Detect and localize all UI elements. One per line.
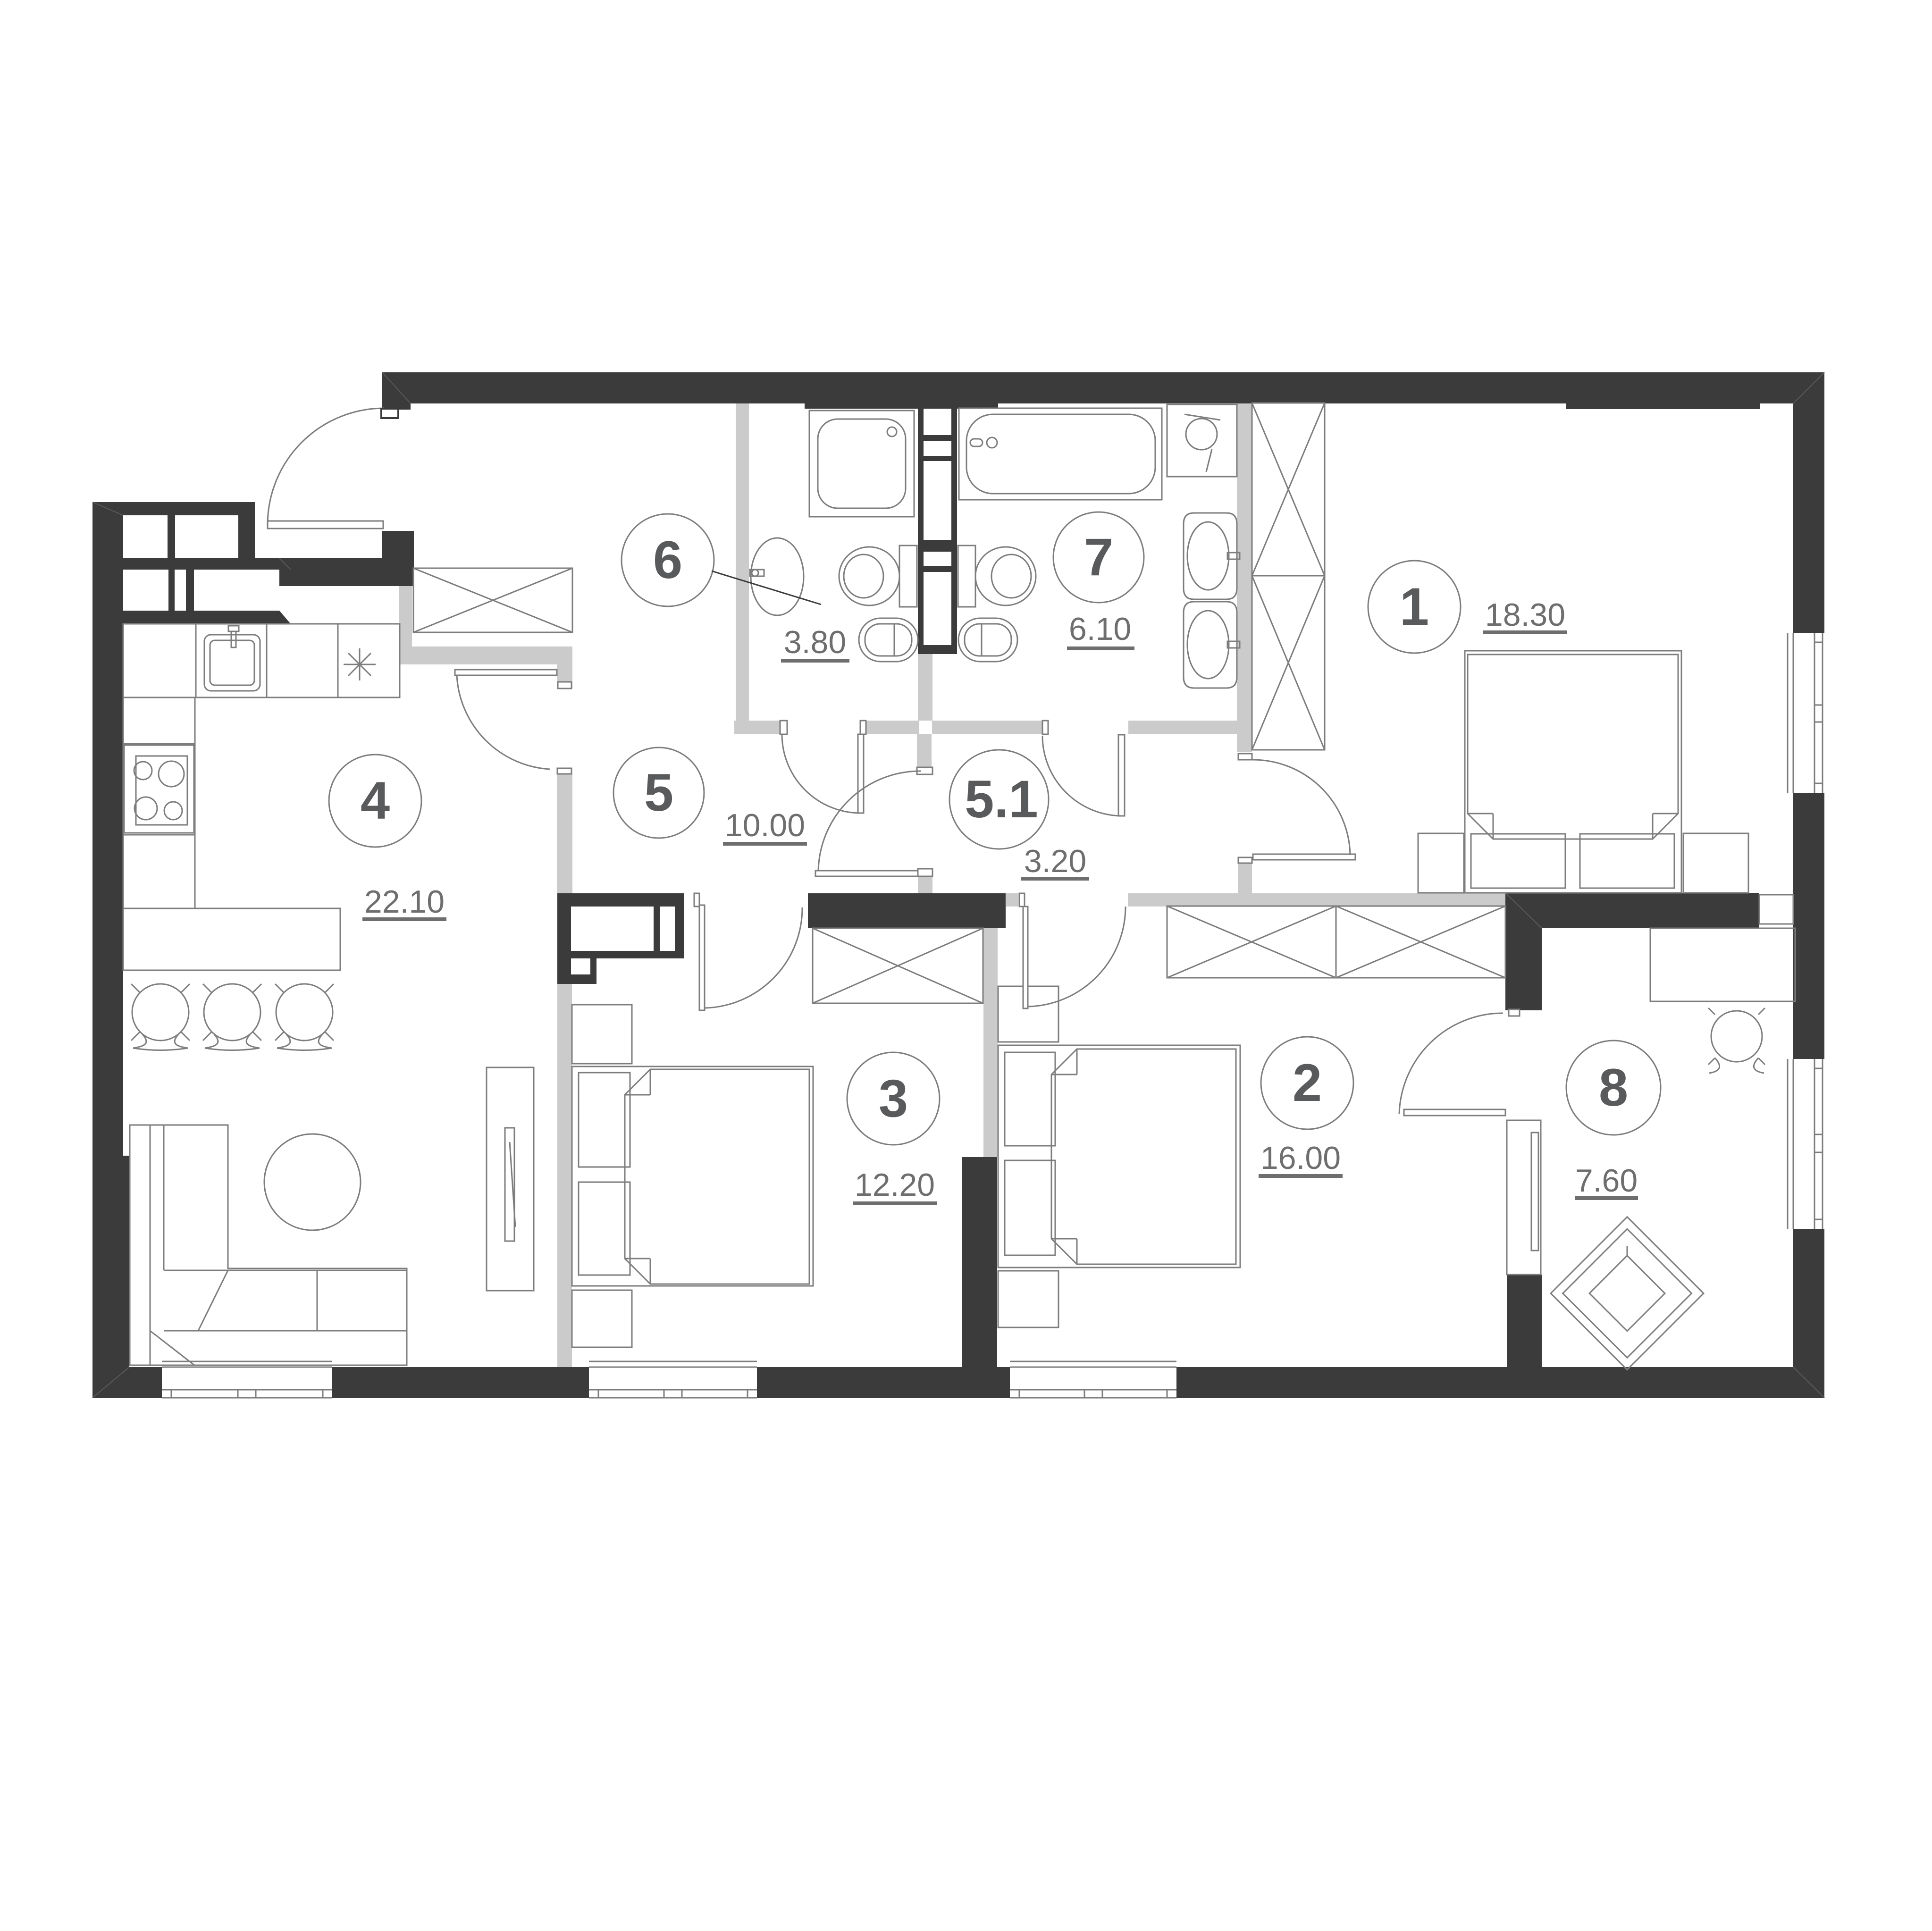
svg-text:12.20: 12.20 xyxy=(855,1167,935,1203)
svg-text:5: 5 xyxy=(644,763,673,822)
svg-text:8: 8 xyxy=(1599,1058,1628,1117)
svg-text:3.80: 3.80 xyxy=(784,624,846,660)
svg-text:5.1: 5.1 xyxy=(965,770,1038,829)
svg-text:7.60: 7.60 xyxy=(1575,1163,1638,1199)
svg-text:4: 4 xyxy=(361,771,390,830)
svg-text:18.30: 18.30 xyxy=(1485,597,1565,633)
svg-text:6.10: 6.10 xyxy=(1069,611,1131,647)
svg-text:22.10: 22.10 xyxy=(364,884,445,920)
svg-text:7: 7 xyxy=(1084,528,1113,587)
svg-text:2: 2 xyxy=(1293,1053,1322,1112)
svg-text:16.00: 16.00 xyxy=(1260,1140,1341,1176)
svg-text:3.20: 3.20 xyxy=(1024,843,1086,879)
svg-text:10.00: 10.00 xyxy=(725,807,805,843)
svg-text:6: 6 xyxy=(653,530,682,589)
svg-text:1: 1 xyxy=(1400,577,1429,636)
svg-text:3: 3 xyxy=(879,1069,908,1128)
